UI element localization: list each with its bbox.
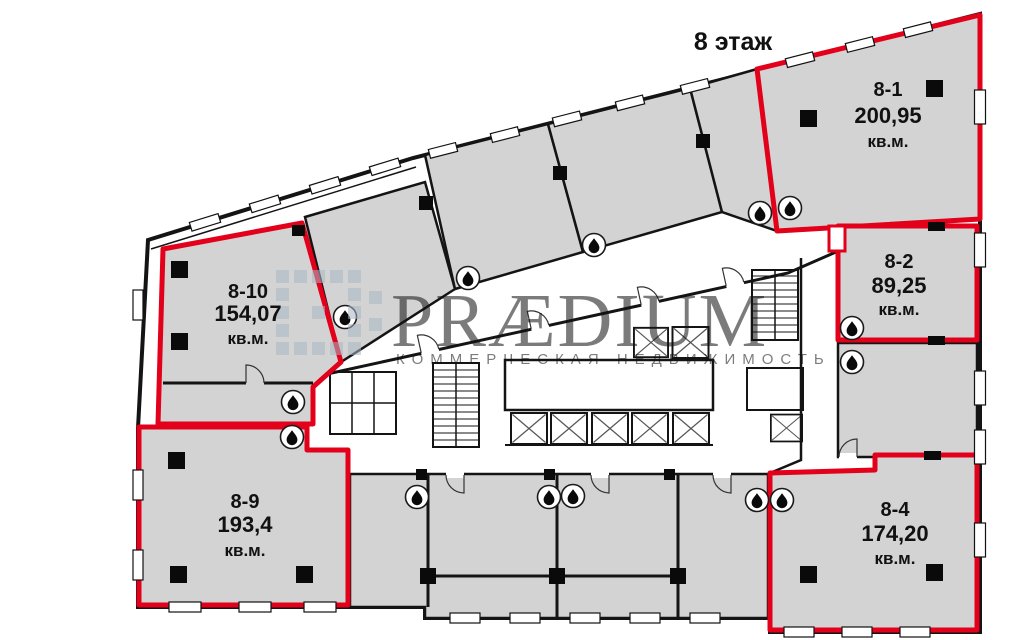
room-8-4-id: 8-4 — [881, 499, 911, 521]
water-drop-icon — [771, 489, 794, 512]
column — [420, 568, 436, 584]
elevator-shaft — [673, 413, 709, 444]
room-8-9-area: 193,4 — [217, 512, 273, 537]
room-8-4-area: 174,20 — [861, 521, 928, 546]
elevator-shaft — [511, 413, 547, 444]
column — [800, 566, 817, 583]
window-mark — [304, 602, 336, 612]
water-drop-icon — [282, 391, 305, 414]
elevator-shaft — [592, 413, 628, 444]
column — [553, 166, 567, 180]
window-mark — [133, 290, 143, 320]
room-8-2-notch — [829, 226, 845, 251]
room-8-2-area: 89,25 — [871, 273, 926, 298]
window-mark — [842, 627, 872, 637]
room-8-2-unit: кв.м. — [879, 300, 920, 319]
room-8-9-id: 8-9 — [231, 491, 260, 513]
window-mark — [975, 371, 986, 405]
column — [416, 469, 427, 480]
window-mark — [975, 90, 986, 124]
room-8-1-area: 200,95 — [854, 103, 921, 128]
window-mark — [975, 233, 986, 267]
floorplan-image: PRÆDIUM КОММЕРЧЕСКАЯ НЕДВИЖИМОСТЬ 8-1 20… — [0, 0, 1031, 640]
room-8-1-id: 8-1 — [874, 79, 903, 101]
window-mark — [510, 613, 540, 623]
water-drop-icon — [749, 202, 772, 225]
window-mark — [900, 627, 930, 637]
water-drop-icon — [562, 485, 585, 508]
window-mark — [133, 550, 143, 580]
elevator-shaft — [551, 413, 587, 444]
water-drop-icon — [281, 426, 304, 449]
room-8-9-unit: кв.м. — [225, 541, 266, 560]
window-mark — [169, 602, 201, 612]
floor-title: 8 этаж — [694, 28, 772, 56]
column — [171, 333, 188, 350]
window-mark — [630, 613, 660, 623]
water-drop-icon — [538, 486, 561, 509]
column — [926, 80, 943, 97]
service-shaft — [771, 415, 802, 442]
room-8-10-id: 8-10 — [228, 281, 268, 303]
column — [696, 134, 710, 148]
column — [670, 568, 686, 584]
column — [171, 261, 188, 278]
column — [926, 564, 943, 581]
column — [549, 568, 565, 584]
column — [168, 452, 185, 469]
window-mark — [975, 430, 986, 464]
window-mark — [784, 627, 814, 637]
elevator-shaft — [632, 413, 668, 444]
column — [419, 196, 433, 210]
room-8-10-unit: кв.м. — [228, 329, 269, 348]
floorplan-svg: PRÆDIUM КОММЕРЧЕСКАЯ НЕДВИЖИМОСТЬ 8-1 20… — [0, 0, 1031, 640]
column — [296, 566, 313, 583]
water-drop-icon — [779, 197, 802, 220]
water-drop-icon — [406, 486, 429, 509]
room-8-4-unit: кв.м. — [875, 549, 916, 568]
room-8-10-area: 154,07 — [214, 301, 281, 326]
room-8-1-unit: кв.м. — [868, 132, 909, 151]
window-mark — [133, 470, 143, 500]
column — [800, 110, 817, 127]
water-drop-icon — [841, 351, 864, 374]
window-mark — [690, 613, 720, 623]
water-drop-icon — [583, 234, 606, 257]
water-drop-icon — [841, 317, 864, 340]
water-drop-icon — [746, 489, 769, 512]
watermark-tagline: КОММЕРЧЕСКАЯ НЕДВИЖИМОСТЬ — [396, 351, 831, 368]
column — [664, 469, 675, 480]
window-mark — [570, 613, 600, 623]
column — [544, 469, 555, 480]
window-mark — [975, 523, 986, 557]
window-mark — [450, 613, 480, 623]
column — [170, 566, 187, 583]
room-8-2-id: 8-2 — [885, 251, 914, 273]
window-mark — [239, 602, 271, 612]
